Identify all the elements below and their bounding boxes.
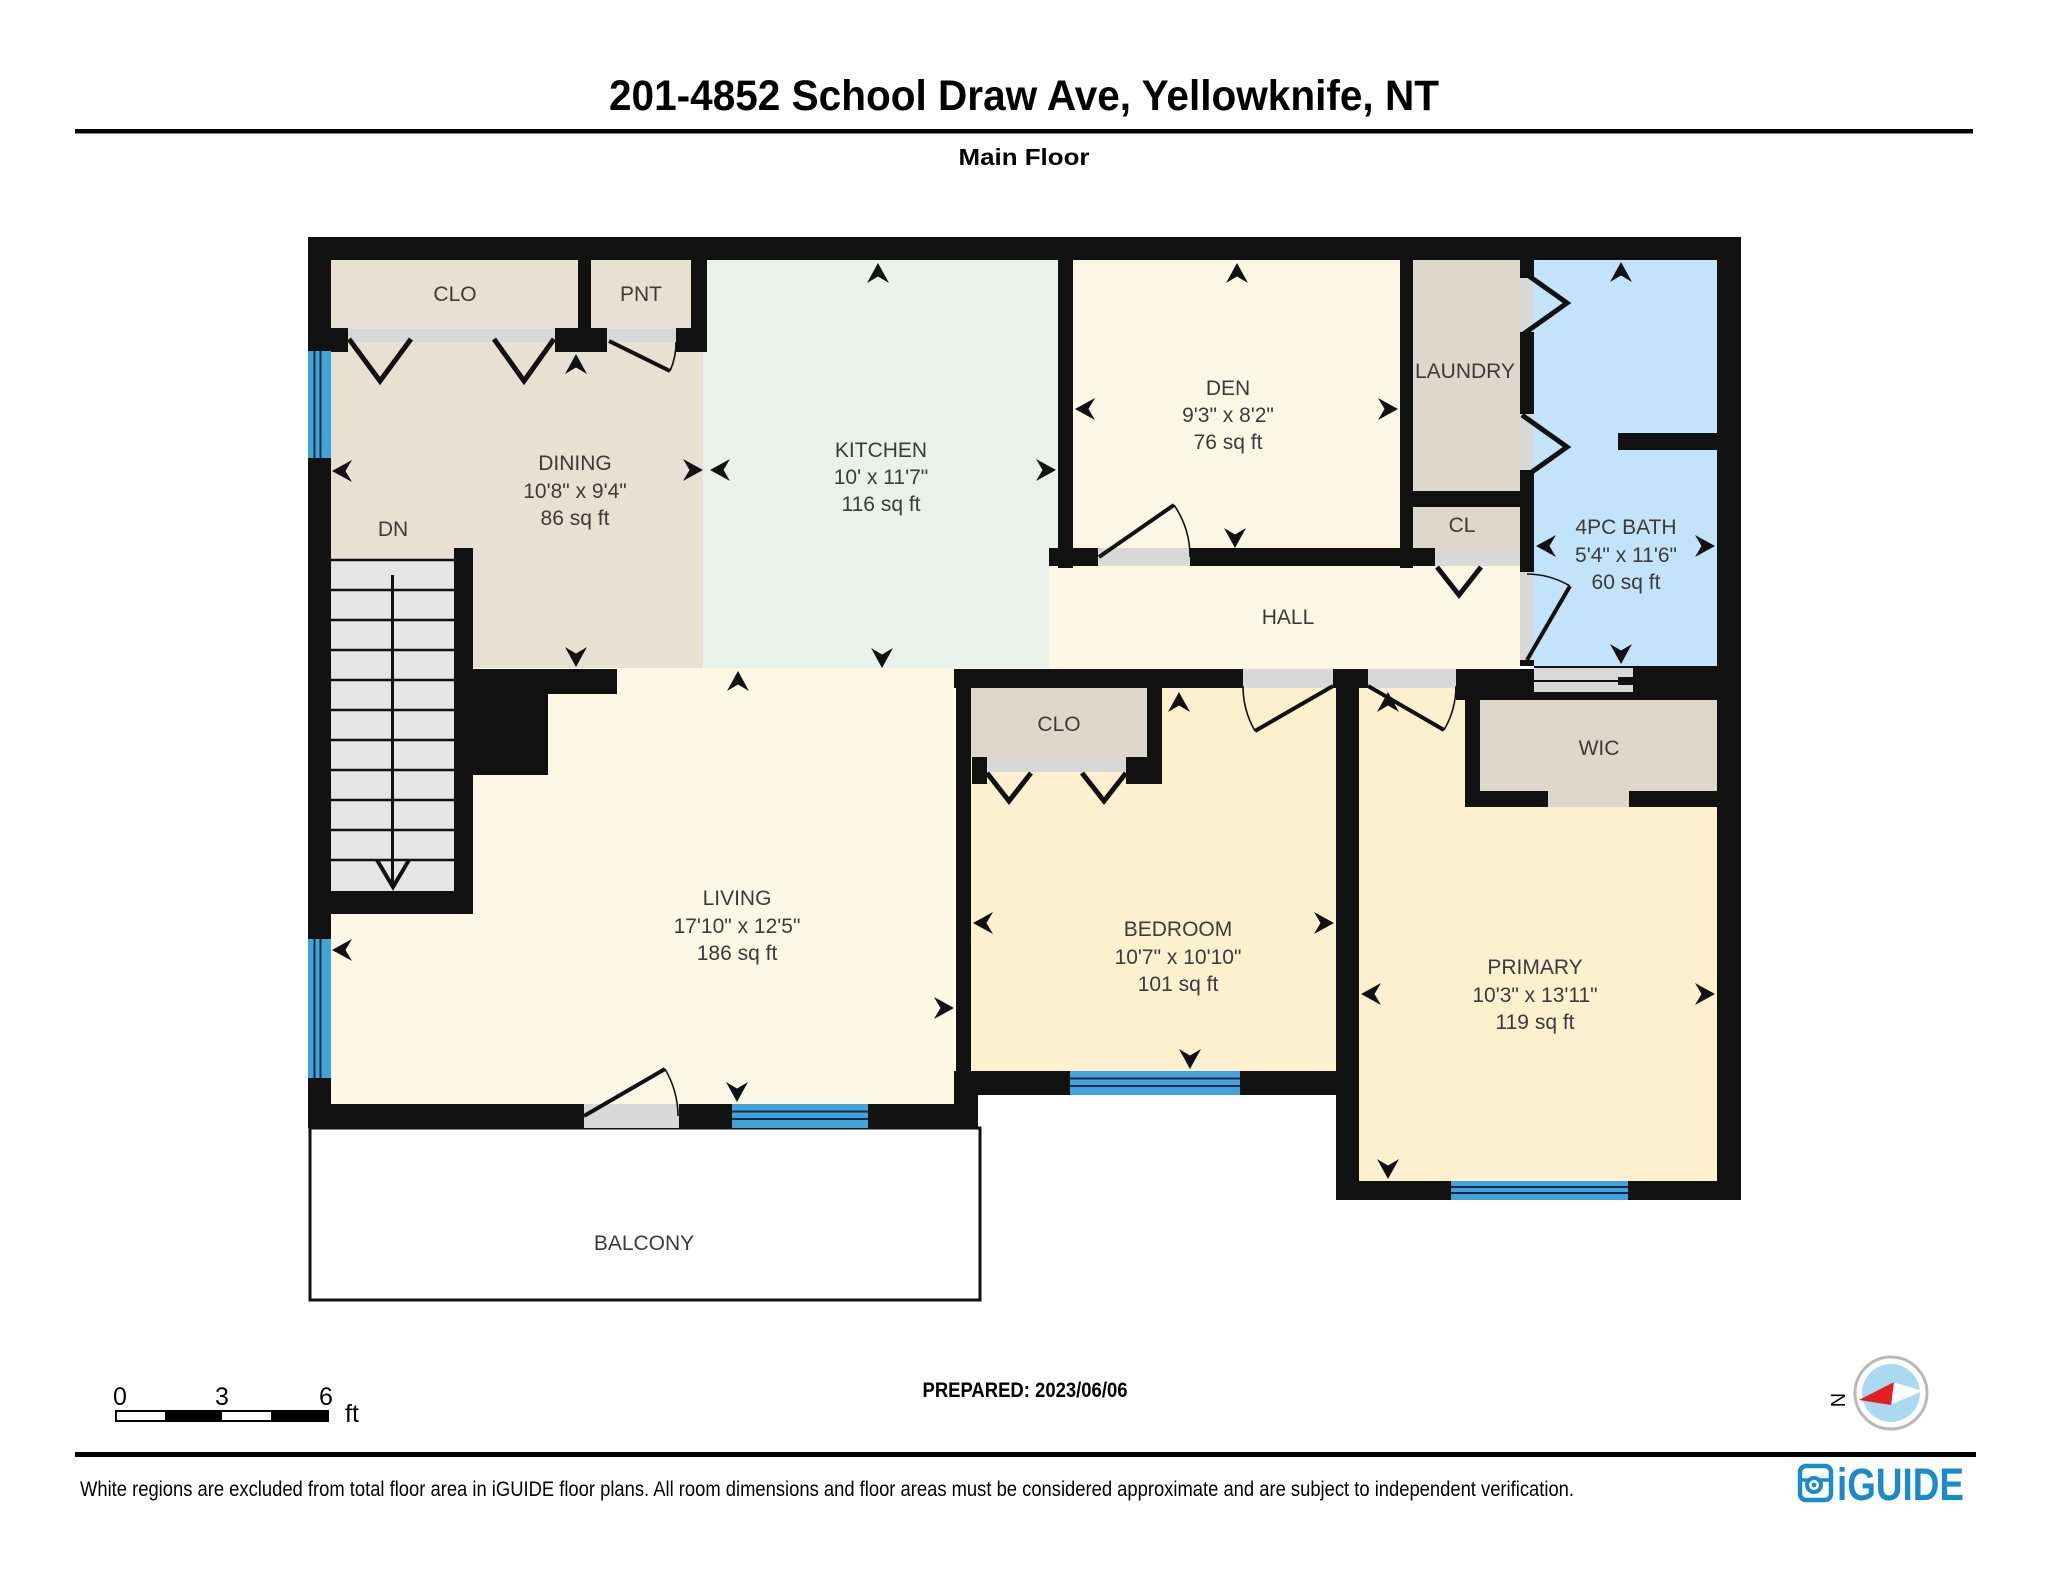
svg-text:76 sq ft: 76 sq ft (1194, 431, 1263, 454)
svg-text:17'10" x 12'5": 17'10" x 12'5" (674, 915, 801, 938)
svg-text:5'4" x 11'6": 5'4" x 11'6" (1575, 544, 1677, 567)
svg-text:HALL: HALL (1262, 606, 1315, 629)
svg-text:iGUIDE: iGUIDE (1837, 1459, 1964, 1510)
svg-text:PRIMARY: PRIMARY (1487, 956, 1582, 979)
svg-text:3: 3 (215, 1383, 229, 1411)
svg-text:LIVING: LIVING (703, 887, 772, 910)
svg-text:101 sq ft: 101 sq ft (1138, 973, 1219, 996)
svg-text:LAUNDRY: LAUNDRY (1415, 360, 1515, 383)
svg-text:CLO: CLO (433, 283, 476, 306)
svg-text:BALCONY: BALCONY (594, 1232, 694, 1255)
svg-text:N: N (1828, 1393, 1850, 1407)
svg-text:PNT: PNT (620, 283, 662, 306)
svg-text:4PC BATH: 4PC BATH (1575, 516, 1676, 539)
svg-text:CL: CL (1449, 514, 1476, 537)
svg-text:PREPARED: 2023/06/06: PREPARED: 2023/06/06 (923, 1379, 1128, 1402)
svg-text:201-4852 School Draw Ave, Yell: 201-4852 School Draw Ave, Yellowknife, N… (609, 72, 1439, 120)
svg-text:116 sq ft: 116 sq ft (842, 493, 921, 516)
svg-text:WIC: WIC (1579, 737, 1620, 760)
svg-text:DN: DN (378, 518, 408, 541)
svg-text:10'8" x 9'4": 10'8" x 9'4" (523, 480, 627, 503)
svg-text:KITCHEN: KITCHEN (835, 439, 927, 462)
svg-text:9'3" x 8'2": 9'3" x 8'2" (1182, 404, 1274, 427)
svg-text:119 sq ft: 119 sq ft (1496, 1011, 1575, 1034)
svg-text:Main Floor: Main Floor (959, 144, 1090, 170)
svg-text:DEN: DEN (1206, 377, 1250, 400)
svg-text:6: 6 (319, 1383, 333, 1411)
svg-text:60 sq ft: 60 sq ft (1592, 571, 1661, 594)
svg-text:White regions are excluded fro: White regions are excluded from total fl… (80, 1477, 1574, 1501)
svg-text:10'7" x 10'10": 10'7" x 10'10" (1115, 946, 1242, 969)
svg-text:186 sq ft: 186 sq ft (697, 942, 778, 965)
svg-text:10'3" x 13'11": 10'3" x 13'11" (1472, 984, 1597, 1007)
svg-text:CLO: CLO (1037, 713, 1080, 736)
svg-text:10' x 11'7": 10' x 11'7" (834, 466, 928, 489)
svg-text:DINING: DINING (538, 452, 612, 475)
svg-text:0: 0 (113, 1383, 127, 1411)
svg-text:ft: ft (345, 1400, 359, 1428)
svg-text:86 sq ft: 86 sq ft (541, 507, 610, 530)
svg-text:BEDROOM: BEDROOM (1124, 918, 1233, 941)
